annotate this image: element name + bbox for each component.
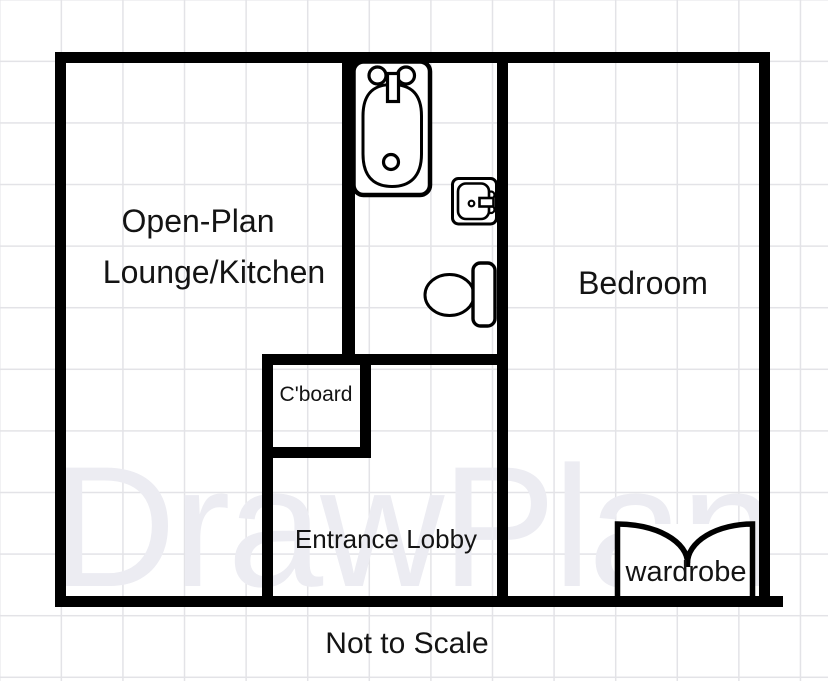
bathtub-icon	[354, 62, 431, 196]
wardrobe-label: wardrobe	[626, 558, 747, 587]
lounge-label-line2: Lounge/Kitchen	[103, 256, 325, 288]
lounge-label-line1: Open-Plan	[122, 205, 275, 237]
bedroom-label: Bedroom	[578, 267, 708, 299]
scale-note: Not to Scale	[325, 628, 488, 659]
floor-plan-canvas: DrawPlan	[0, 0, 828, 681]
entrance-lobby-label: Entrance Lobby	[295, 526, 477, 552]
toilet-icon	[425, 263, 495, 326]
sink-icon	[453, 179, 497, 225]
cupboard-label: C'board	[280, 384, 353, 406]
